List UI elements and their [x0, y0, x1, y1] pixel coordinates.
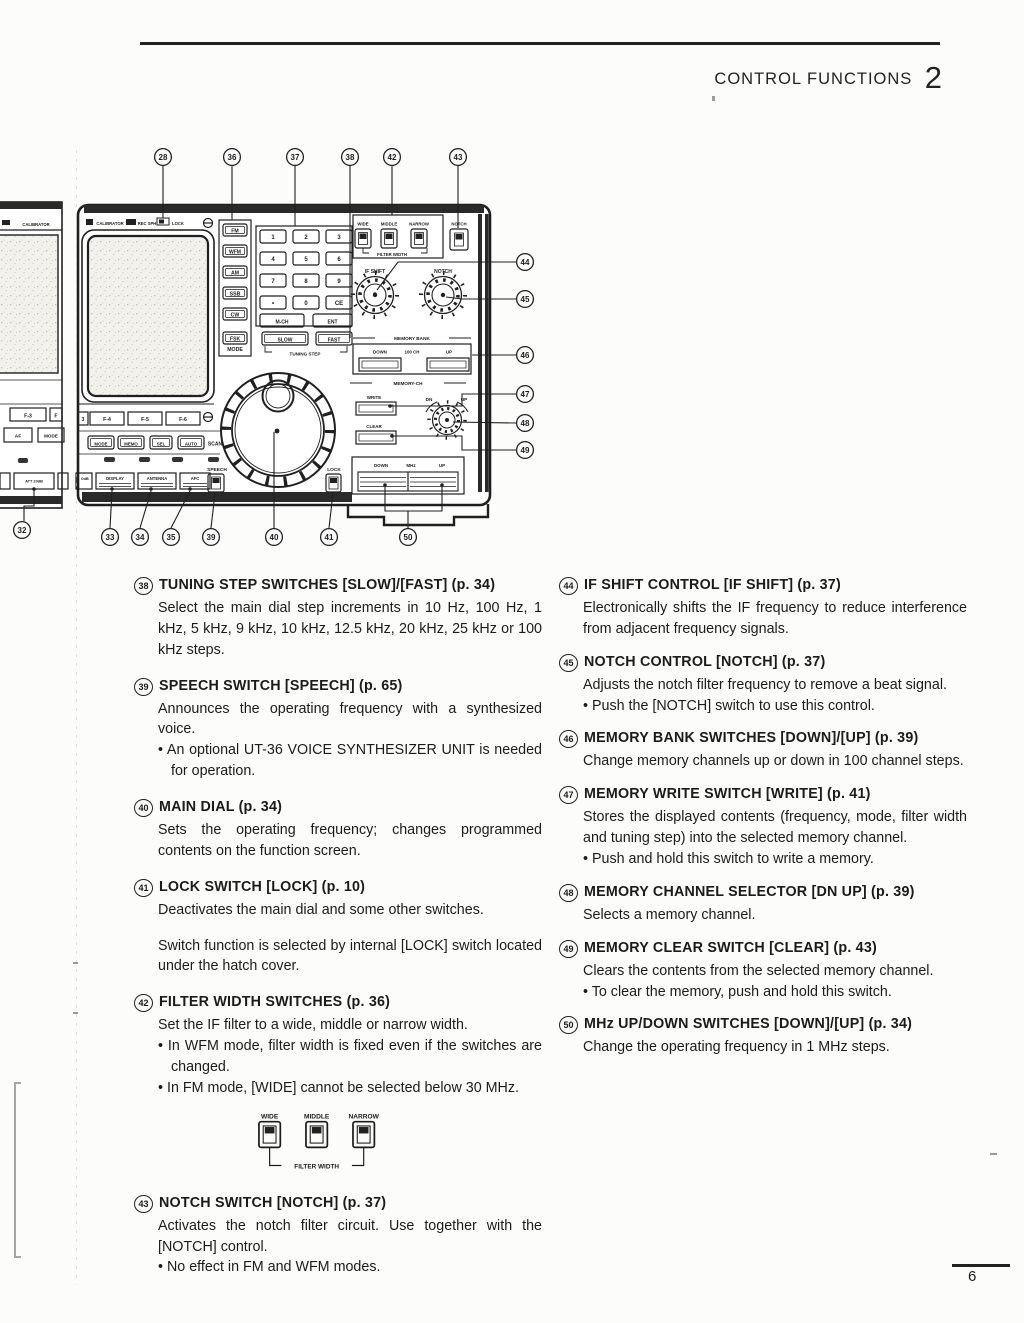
svg-text:35: 35 [167, 533, 176, 542]
mode-wfm: WFM [229, 250, 241, 256]
control-item-46: 46 MEMORY BANK SWITCHES [DOWN]/[UP] (p. … [546, 729, 967, 772]
item-body: Sets the operating frequency; changes pr… [158, 820, 542, 862]
memory-ch-label: MEMORY-CH [394, 381, 424, 386]
key-ent: ENT [328, 320, 338, 326]
notch-button-label: NOTCH [451, 222, 466, 227]
item-number-badge: 47 [559, 786, 578, 804]
key-mch: M-CH [275, 320, 288, 326]
item-body: Change memory channels up or down in 100… [583, 751, 967, 772]
key-dot: • [272, 301, 274, 307]
display-screen [82, 230, 214, 402]
control-item-48: 48 MEMORY CHANNEL SELECTOR [DN UP] (p. 3… [546, 883, 967, 926]
page-title: CONTROL FUNCTIONS [714, 70, 912, 88]
item-title: NOTCH SWITCH [NOTCH] (p. 37) [159, 1194, 386, 1211]
memory-bank-label: MEMORY BANK [394, 336, 430, 341]
filter-width-label: FILTER WIDTH [377, 252, 407, 257]
display-button: DISPLAY [106, 476, 124, 481]
write-label: WRITE [367, 395, 382, 400]
tuning-step-label: TUNING STEP [290, 352, 321, 357]
chapter-number: 2 [925, 60, 942, 95]
item-number-badge: 44 [559, 577, 578, 595]
control-item-50: 50 MHz UP/DOWN SWITCHES [DOWN]/[UP] (p. … [546, 1015, 967, 1058]
bank-100ch-label: 100 CH [405, 350, 420, 355]
if-shift-label: IF SHIFT [365, 269, 385, 275]
top-calibrator-label: CALIBRATOR [96, 221, 123, 226]
callout-28: 28 [155, 149, 172, 166]
item-number-badge: 46 [559, 730, 578, 748]
svg-text:46: 46 [521, 351, 530, 360]
strip-af-button: AF [15, 434, 21, 440]
item-body: Change the operating frequency in 1 MHz … [583, 1037, 967, 1058]
mode-am: AM [231, 271, 239, 277]
item-number-badge: 42 [134, 994, 153, 1012]
page-number: 6 [968, 1268, 976, 1285]
item-body: Switch function is selected by internal … [158, 936, 542, 978]
svg-text:50: 50 [404, 533, 413, 542]
mode-ssb: SSB [230, 292, 241, 298]
fig-narrow-label: NARROW [348, 1113, 379, 1120]
item-body: Adjusts the notch filter frequency to re… [583, 675, 967, 696]
callout-39: 39 [203, 529, 220, 546]
fast-switch: FAST [328, 338, 341, 344]
svg-text:36: 36 [228, 153, 237, 162]
item-title: LOCK SWITCH [LOCK] (p. 10) [159, 878, 365, 895]
item-title: MEMORY CLEAR SWITCH [CLEAR] (p. 43) [584, 939, 877, 956]
fkey-f5: F-5 [141, 417, 149, 423]
svg-text:28: 28 [159, 153, 168, 162]
item-number-badge: 38 [134, 577, 153, 595]
item-bullet: In WFM mode, filter width is fixed even … [158, 1036, 542, 1078]
svg-text:45: 45 [521, 295, 530, 304]
control-item-42: 42 FILTER WIDTH SWITCHES (p. 36) Set the… [121, 993, 542, 1177]
item-title: MEMORY WRITE SWITCH [WRITE] (p. 41) [584, 785, 871, 802]
item-title: NOTCH CONTROL [NOTCH] (p. 37) [584, 653, 825, 670]
fig-caption: FILTER WIDTH [294, 1163, 339, 1170]
panel-foot [348, 504, 488, 525]
svg-text:32: 32 [18, 526, 27, 535]
item-number-badge: 49 [559, 940, 578, 958]
callout-34: 34 [132, 529, 149, 546]
dn-label: DN [426, 397, 433, 402]
control-item-45: 45 NOTCH CONTROL [NOTCH] (p. 37) Adjusts… [546, 653, 967, 717]
svg-text:34: 34 [136, 533, 145, 542]
control-item-49: 49 MEMORY CLEAR SWITCH [CLEAR] (p. 43) C… [546, 939, 967, 1003]
item-title: MAIN DIAL (p. 34) [159, 798, 282, 815]
item-body: Electronically shifts the IF frequency t… [583, 598, 967, 640]
strip-att-button: ATT 20dB [25, 479, 43, 484]
callout-36: 36 [224, 149, 241, 166]
callout-42: 42 [384, 149, 401, 166]
control-item-44: 44 IF SHIFT CONTROL [IF SHIFT] (p. 37) E… [546, 576, 967, 640]
callout-49: 49 [517, 442, 534, 459]
scan-speck [73, 1012, 78, 1014]
mode-fm: FM [231, 229, 239, 235]
antenna-button: ANTENNA [147, 476, 167, 481]
scan-mode-button: MODE [94, 442, 107, 447]
scan-sel-button: SEL [157, 442, 166, 447]
item-title: TUNING STEP SWITCHES [SLOW]/[FAST] (p. 3… [159, 576, 495, 593]
scan-memo-button: MEMO [124, 442, 138, 447]
svg-text:48: 48 [521, 419, 530, 428]
scan-speck [990, 1153, 997, 1155]
item-title: IF SHIFT CONTROL [IF SHIFT] (p. 37) [584, 576, 841, 593]
mode-label: MODE [227, 347, 243, 353]
svg-text:49: 49 [521, 446, 530, 455]
clear-label: CLEAR [366, 424, 382, 429]
scan-speck [712, 96, 715, 101]
item-title: MEMORY BANK SWITCHES [DOWN]/[UP] (p. 39) [584, 729, 918, 746]
mode-cw: CW [231, 313, 240, 319]
callout-41: 41 [321, 529, 338, 546]
item-number-badge: 43 [134, 1195, 153, 1213]
top-lock-label: LOCK [172, 221, 184, 226]
strip-mode-button: MODE [44, 434, 58, 439]
svg-text:37: 37 [291, 153, 300, 162]
svg-text:42: 42 [388, 153, 397, 162]
callout-33: 33 [102, 529, 119, 546]
svg-text:43: 43 [454, 153, 463, 162]
left-panel-strip [0, 202, 68, 508]
mode-fsk: FSK [230, 337, 241, 343]
wide-label: WIDE [357, 222, 368, 227]
callout-48: 48 [517, 415, 534, 432]
callout-46: 46 [517, 347, 534, 364]
control-item-39: 39 SPEECH SWITCH [SPEECH] (p. 65) Announ… [121, 677, 542, 782]
item-number-badge: 45 [559, 654, 578, 672]
svg-text:33: 33 [106, 533, 115, 542]
middle-label: MIDDLE [381, 222, 398, 227]
callout-37: 37 [287, 149, 304, 166]
item-number-badge: 41 [134, 879, 153, 897]
item-number-badge: 48 [559, 884, 578, 902]
fig-wide-label: WIDE [261, 1113, 279, 1120]
callout-47: 47 [517, 386, 534, 403]
scan-auto-button: AUTO [185, 442, 198, 447]
item-body: Announces the operating frequency with a… [158, 699, 542, 741]
control-item-41: 41 LOCK SWITCH [LOCK] (p. 10) Deactivate… [121, 878, 542, 978]
filter-width-figure-svg: WIDE MIDDLE NARROW FILTER WIDTH [252, 1111, 392, 1173]
item-body: Activates the notch filter circuit. Use … [158, 1216, 542, 1258]
control-item-47: 47 MEMORY WRITE SWITCH [WRITE] (p. 41) S… [546, 785, 967, 870]
lock-label: LOCK [327, 467, 341, 473]
fkey-f6: F-6 [179, 417, 187, 423]
diagram-lines [0, 166, 516, 528]
svg-text:38: 38 [346, 153, 355, 162]
slow-switch: SLOW [278, 338, 293, 344]
svg-text:44: 44 [521, 258, 530, 267]
item-bullet: In FM mode, [WIDE] cannot be selected be… [158, 1078, 542, 1099]
item-body: Clears the contents from the selected me… [583, 961, 967, 982]
narrow-label: NARROW [409, 222, 430, 227]
right-text-column: 44 IF SHIFT CONTROL [IF SHIFT] (p. 37) E… [546, 576, 967, 1071]
header-rule [140, 42, 940, 45]
fig-middle-label: MIDDLE [304, 1113, 330, 1120]
item-number-badge: 40 [134, 799, 153, 817]
svg-text:47: 47 [521, 390, 530, 399]
scan-artifact-bracket-top [14, 1082, 21, 1084]
item-body: Stores the displayed contents (frequency… [583, 807, 967, 849]
strip-calibrator-label: CALIBRATOR [22, 222, 49, 227]
svg-text:39: 39 [207, 533, 216, 542]
callout-43: 43 [450, 149, 467, 166]
item-body: Selects a memory channel. [583, 905, 967, 926]
callout-32: 32 [14, 522, 31, 539]
att-partial-button: 0dB [81, 476, 89, 481]
item-title: MHz UP/DOWN SWITCHES [DOWN]/[UP] (p. 34) [584, 1015, 912, 1032]
item-bullet: No effect in FM and WFM modes. [158, 1257, 542, 1278]
mhz-down-label: DOWN [374, 463, 388, 468]
scan-artifact-bracket-bottom [14, 1256, 21, 1258]
filter-width-figure: WIDE MIDDLE NARROW FILTER WIDTH [252, 1111, 542, 1178]
scan-artifact-dotted-line [76, 150, 77, 1285]
item-bullet: Push the [NOTCH] switch to use this cont… [583, 696, 967, 717]
bank-down-label: DOWN [373, 350, 387, 355]
mhz-label: MHz [406, 463, 416, 468]
callout-38: 38 [342, 149, 359, 166]
control-item-40: 40 MAIN DIAL (p. 34) Sets the operating … [121, 798, 542, 862]
footer-rule [952, 1264, 1010, 1267]
left-text-column: 38 TUNING STEP SWITCHES [SLOW]/[FAST] (p… [121, 576, 542, 1294]
speech-label: SPEECH [207, 467, 227, 473]
strip-f3-key: F-3 [24, 414, 32, 420]
page-header: CONTROL FUNCTIONS 2 [560, 60, 942, 96]
item-title: MEMORY CHANNEL SELECTOR [DN UP] (p. 39) [584, 883, 915, 900]
item-bullet: An optional UT-36 VOICE SYNTHESIZER UNIT… [158, 740, 542, 782]
item-body: Set the IF filter to a wide, middle or n… [158, 1015, 542, 1036]
fkey-f4: F-4 [103, 417, 111, 423]
bank-up-label: UP [446, 350, 452, 355]
key-ce: CE [335, 301, 343, 307]
item-number-badge: 50 [559, 1016, 578, 1034]
scan-speck [73, 962, 78, 964]
callout-40: 40 [266, 529, 283, 546]
scan-label: SCAN [208, 442, 223, 448]
callout-44: 44 [517, 254, 534, 271]
strip-f-partial-key: F [54, 414, 57, 420]
item-bullet: To clear the memory, push and hold this … [583, 982, 967, 1003]
notch-knob-label: NOTCH [434, 269, 452, 275]
item-body: Deactivates the main dial and some other… [158, 900, 542, 921]
callout-50: 50 [400, 529, 417, 546]
front-panel-diagram: CALIBRATOR F-3 F AF MODE ATT 20dB CALIBR… [0, 140, 545, 565]
up-label: UP [461, 397, 468, 402]
item-title: FILTER WIDTH SWITCHES (p. 36) [159, 993, 390, 1010]
top-rec-label: REC SPH [138, 221, 157, 226]
control-item-38: 38 TUNING STEP SWITCHES [SLOW]/[FAST] (p… [121, 576, 542, 661]
item-number-badge: 39 [134, 678, 153, 696]
scan-artifact-bracket [14, 1082, 16, 1258]
mhz-up-label: UP [439, 463, 445, 468]
svg-text:41: 41 [325, 533, 334, 542]
item-title: SPEECH SWITCH [SPEECH] (p. 65) [159, 677, 403, 694]
control-item-43: 43 NOTCH SWITCH [NOTCH] (p. 37) Activate… [121, 1194, 542, 1279]
item-body: Select the main dial step increments in … [158, 598, 542, 661]
item-bullet: Push and hold this switch to write a mem… [583, 849, 967, 870]
afc-button: AFC [191, 476, 200, 481]
callout-45: 45 [517, 291, 534, 308]
fkey-3-partial: 3 [82, 417, 85, 423]
svg-text:40: 40 [270, 533, 279, 542]
callout-35: 35 [163, 529, 180, 546]
